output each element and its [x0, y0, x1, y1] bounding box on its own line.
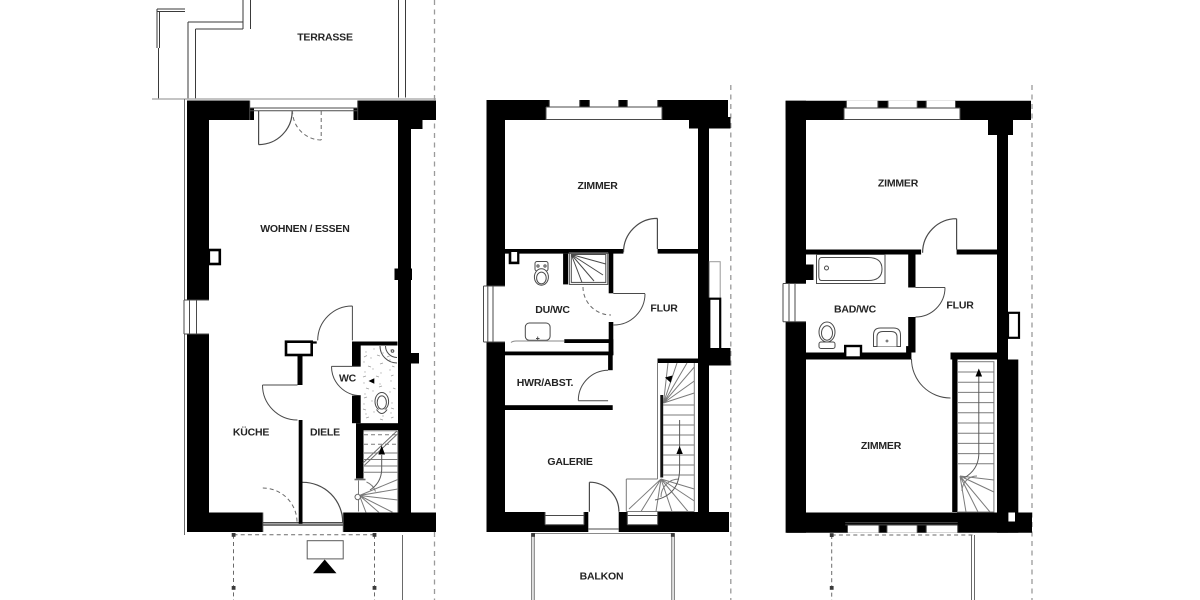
svg-text:GALERIE: GALERIE: [547, 456, 592, 468]
svg-text:DIELE: DIELE: [310, 427, 340, 439]
svg-text:ZIMMER: ZIMMER: [861, 440, 902, 452]
svg-text:BAD/WC: BAD/WC: [834, 304, 877, 316]
svg-text:BALKON: BALKON: [580, 571, 624, 583]
svg-text:ZIMMER: ZIMMER: [878, 178, 919, 190]
svg-text:FLUR: FLUR: [946, 300, 974, 312]
svg-text:ZIMMER: ZIMMER: [577, 180, 618, 192]
svg-text:FLUR: FLUR: [650, 303, 678, 315]
svg-text:HWR/ABST.: HWR/ABST.: [517, 377, 574, 389]
svg-text:KÜCHE: KÜCHE: [233, 426, 270, 439]
svg-text:WC: WC: [339, 373, 357, 385]
svg-text:DU/WC: DU/WC: [535, 304, 570, 316]
svg-text:WOHNEN / ESSEN: WOHNEN / ESSEN: [260, 223, 349, 235]
svg-text:TERRASSE: TERRASSE: [297, 32, 353, 44]
